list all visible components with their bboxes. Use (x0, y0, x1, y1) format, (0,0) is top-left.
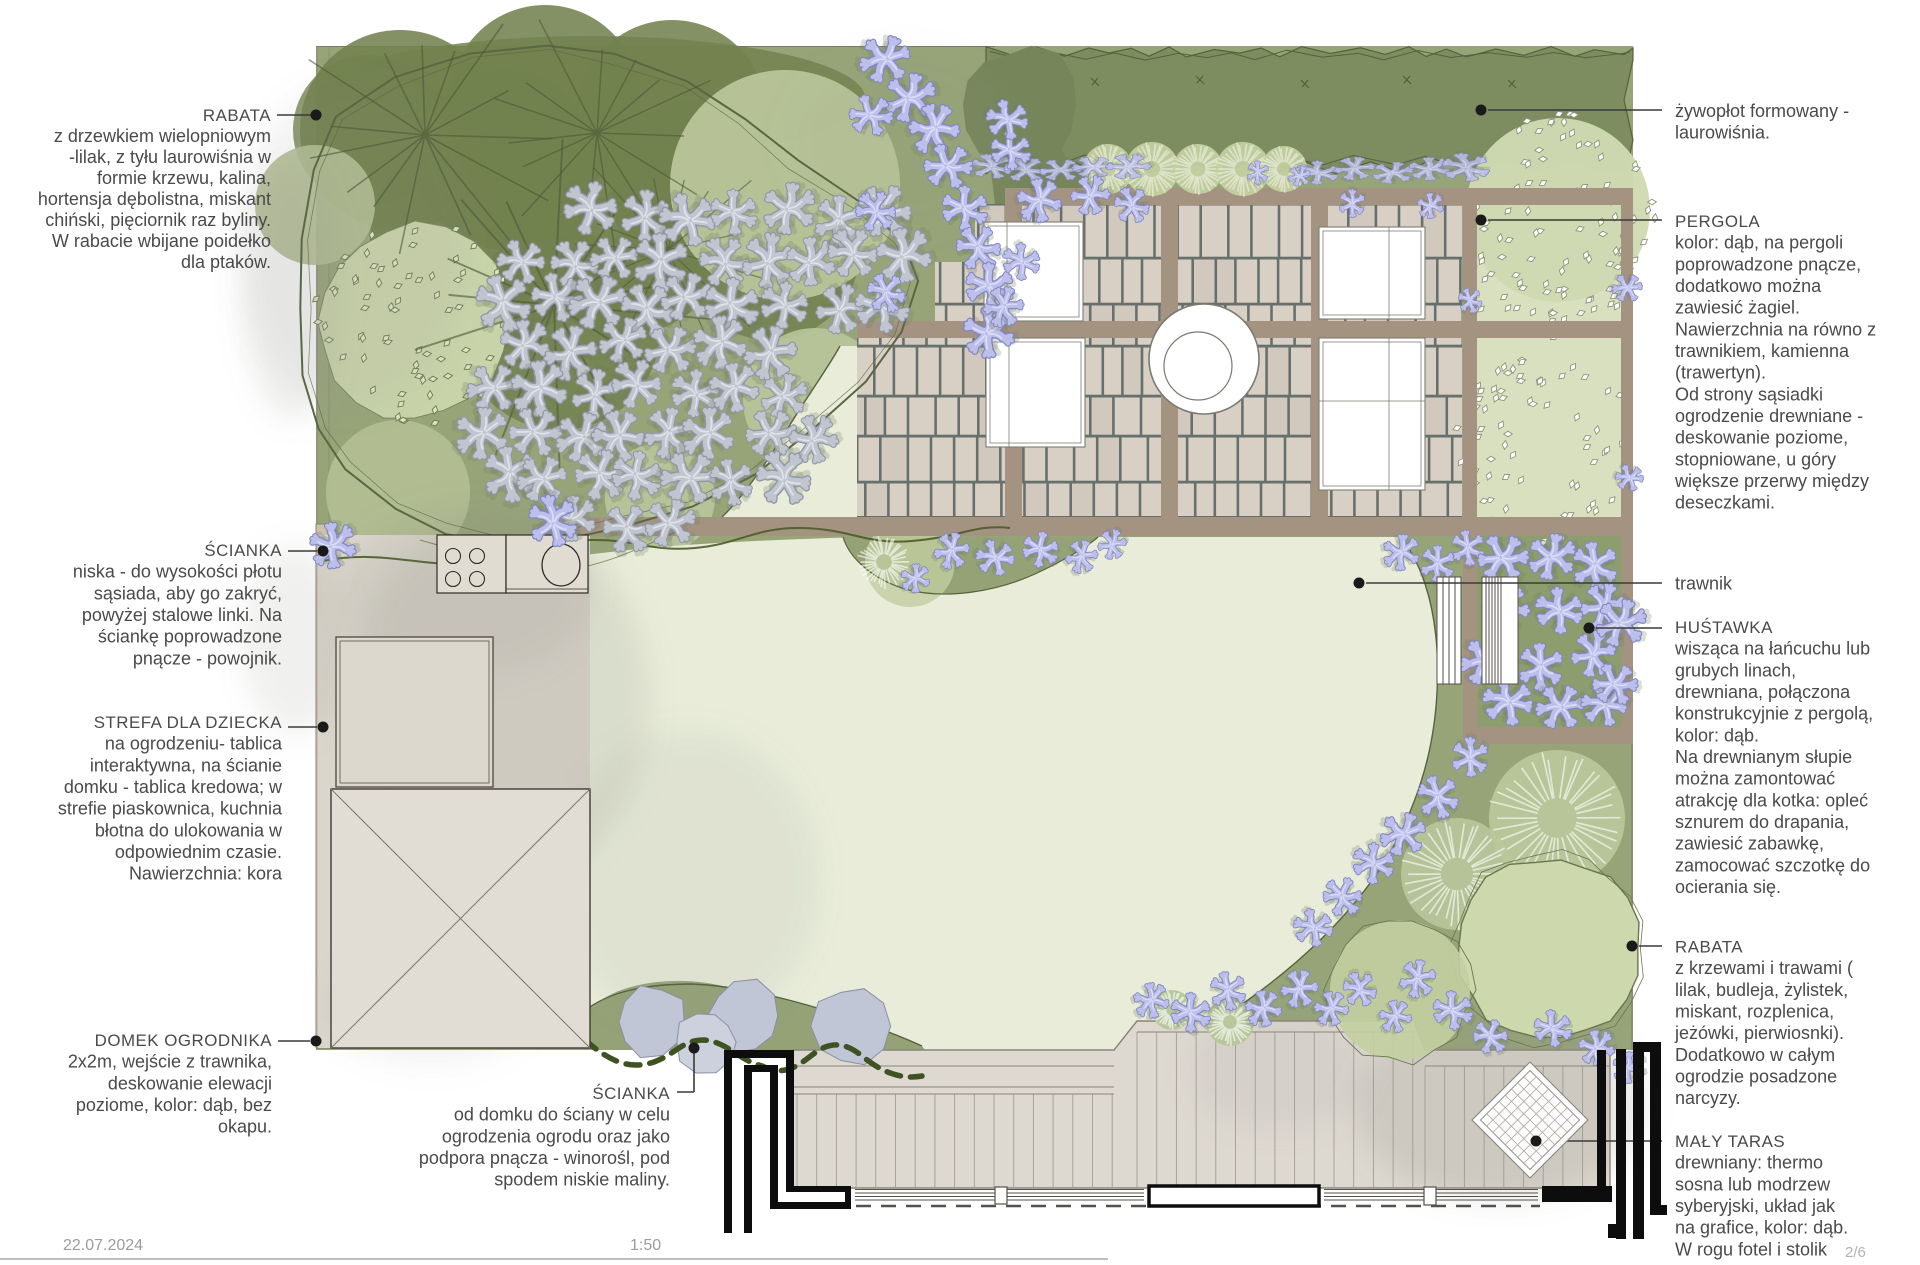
svg-text:Od strony sąsiadki: Od strony sąsiadki (1675, 384, 1823, 404)
svg-text:z krzewami i trawami (: z krzewami i trawami ( (1675, 958, 1853, 978)
svg-text:grubych linach,: grubych linach, (1675, 660, 1796, 680)
svg-text:ŚCIANKA: ŚCIANKA (592, 1084, 670, 1103)
svg-text:zawiesić żagiel.: zawiesić żagiel. (1675, 298, 1800, 318)
svg-text:2x2m, wejście z trawnika,: 2x2m, wejście z trawnika, (68, 1052, 272, 1072)
svg-text:Dodatkowo w całym: Dodatkowo w całym (1675, 1045, 1835, 1065)
svg-text:HUŚTAWKA: HUŚTAWKA (1675, 618, 1773, 637)
svg-text:1:50: 1:50 (630, 1237, 661, 1254)
svg-text:drewniana, połączona: drewniana, połączona (1675, 682, 1851, 702)
svg-text:sosna lub modrzew: sosna lub modrzew (1675, 1174, 1831, 1194)
svg-text:na ogrodzeniu- tablica: na ogrodzeniu- tablica (105, 734, 283, 754)
svg-text:spodem niskie maliny.: spodem niskie maliny. (494, 1170, 670, 1190)
svg-text:atrakcję dla kotka: opleć: atrakcję dla kotka: opleć (1675, 790, 1868, 810)
svg-text:W rabacie wbijane poidełko: W rabacie wbijane poidełko (52, 231, 271, 251)
svg-text:zamocować szczotkę do: zamocować szczotkę do (1675, 855, 1870, 875)
svg-text:miskant, rozplenica,: miskant, rozplenica, (1675, 1002, 1834, 1022)
svg-text:ściankę poprowadzone: ściankę poprowadzone (98, 627, 282, 647)
svg-text:syberyjski, układ jak: syberyjski, układ jak (1675, 1196, 1836, 1216)
svg-text:żywopłot formowany -: żywopłot formowany - (1675, 101, 1849, 121)
svg-text:RABATA: RABATA (203, 106, 271, 125)
svg-text:(trawertyn).: (trawertyn). (1675, 363, 1766, 383)
svg-text:drewniany: thermo: drewniany: thermo (1675, 1153, 1823, 1173)
svg-text:większe przerwy między: większe przerwy między (1674, 471, 1869, 491)
svg-text:dodatkowo można: dodatkowo można (1675, 276, 1822, 296)
svg-text:jeżówki, pierwiosnki).: jeżówki, pierwiosnki). (1674, 1023, 1844, 1043)
svg-text:z drzewkiem wielopniowym: z drzewkiem wielopniowym (54, 126, 271, 146)
svg-text:błotna do ulokowania w: błotna do ulokowania w (95, 820, 283, 840)
svg-text:hortensja dębolistna, miskant: hortensja dębolistna, miskant (38, 189, 271, 209)
svg-text:ocierania się.: ocierania się. (1675, 877, 1781, 897)
svg-text:domku - tablica kredowa; w: domku - tablica kredowa; w (64, 777, 283, 797)
svg-text:trawnikiem, kamienna: trawnikiem, kamienna (1675, 341, 1850, 361)
svg-text:kolor: dąb, na pergoli: kolor: dąb, na pergoli (1675, 233, 1843, 253)
svg-text:ŚCIANKA: ŚCIANKA (204, 541, 282, 560)
svg-text:ogrodzenie drewniane -: ogrodzenie drewniane - (1675, 406, 1863, 426)
svg-text:konstrukcyjnie z pergolą,: konstrukcyjnie z pergolą, (1675, 704, 1873, 724)
svg-text:interaktywna, na ścianie: interaktywna, na ścianie (90, 755, 282, 775)
svg-text:ogrodzenia ogrodu oraz jako: ogrodzenia ogrodu oraz jako (442, 1126, 670, 1146)
svg-text:-lilak, z tyłu laurowiśnia w: -lilak, z tyłu laurowiśnia w (69, 147, 272, 167)
svg-text:na grafice, kolor: dąb.: na grafice, kolor: dąb. (1675, 1218, 1848, 1238)
svg-text:poziome, kolor: dąb, bez: poziome, kolor: dąb, bez (76, 1095, 272, 1115)
svg-text:deseczkami.: deseczkami. (1675, 493, 1775, 513)
svg-text:MAŁY TARAS: MAŁY TARAS (1675, 1132, 1785, 1151)
svg-text:narcyzy.: narcyzy. (1675, 1088, 1741, 1108)
svg-text:poprowadzone pnącze,: poprowadzone pnącze, (1675, 254, 1861, 274)
svg-text:deskowanie poziome,: deskowanie poziome, (1675, 428, 1848, 448)
svg-text:okapu.: okapu. (218, 1117, 272, 1137)
svg-text:dla ptaków.: dla ptaków. (181, 252, 271, 272)
svg-text:22.07.2024: 22.07.2024 (63, 1237, 143, 1254)
svg-text:powyżej stalowe linki. Na: powyżej stalowe linki. Na (82, 605, 283, 625)
svg-text:kolor: dąb.: kolor: dąb. (1675, 725, 1759, 745)
svg-text:pnącze - powojnik.: pnącze - powojnik. (133, 648, 282, 668)
svg-text:chiński, pięciornik raz byliny: chiński, pięciornik raz byliny. (45, 210, 271, 230)
svg-text:sąsiada, aby go zakryć,: sąsiada, aby go zakryć, (94, 583, 282, 603)
svg-text:2/6: 2/6 (1845, 1244, 1866, 1260)
svg-text:W rogu fotel i stolik: W rogu fotel i stolik (1675, 1239, 1828, 1259)
svg-text:sznurem do drapania,: sznurem do drapania, (1675, 812, 1849, 832)
svg-text:lilak, budleja, żylistek,: lilak, budleja, żylistek, (1675, 980, 1848, 1000)
svg-text:zawiesić zabawkę,: zawiesić zabawkę, (1675, 834, 1824, 854)
svg-text:trawnik: trawnik (1675, 574, 1733, 594)
svg-text:deskowanie elewacji: deskowanie elewacji (108, 1073, 272, 1093)
svg-text:Na drewnianym słupie: Na drewnianym słupie (1675, 747, 1852, 767)
svg-text:DOMEK OGRODNIKA: DOMEK OGRODNIKA (95, 1031, 273, 1050)
svg-text:podpora pnącza - winorośl, pod: podpora pnącza - winorośl, pod (419, 1148, 670, 1168)
svg-text:od domku do ściany w celu: od domku do ściany w celu (454, 1105, 670, 1125)
svg-text:niska - do wysokości płotu: niska - do wysokości płotu (73, 562, 282, 582)
svg-text:Nawierzchnia na równo z: Nawierzchnia na równo z (1675, 319, 1876, 339)
svg-text:odpowiednim czasie.: odpowiednim czasie. (115, 842, 282, 862)
svg-text:strefie piaskownica, kuchnia: strefie piaskownica, kuchnia (58, 799, 283, 819)
svg-text:wisząca na łańcuchu lub: wisząca na łańcuchu lub (1674, 639, 1870, 659)
svg-text:formie krzewu, kalina,: formie krzewu, kalina, (97, 168, 271, 188)
svg-text:można zamontować: można zamontować (1675, 769, 1835, 789)
svg-text:laurowiśnia.: laurowiśnia. (1675, 123, 1770, 143)
svg-text:STREFA DLA DZIECKA: STREFA DLA DZIECKA (94, 713, 283, 732)
svg-text:RABATA: RABATA (1675, 938, 1743, 957)
svg-text:PERGOLA: PERGOLA (1675, 212, 1760, 231)
svg-text:stopniowane, u góry: stopniowane, u góry (1675, 449, 1836, 469)
svg-text:ogrodzie posadzone: ogrodzie posadzone (1675, 1067, 1837, 1087)
svg-text:Nawierzchnia: kora: Nawierzchnia: kora (129, 864, 283, 884)
